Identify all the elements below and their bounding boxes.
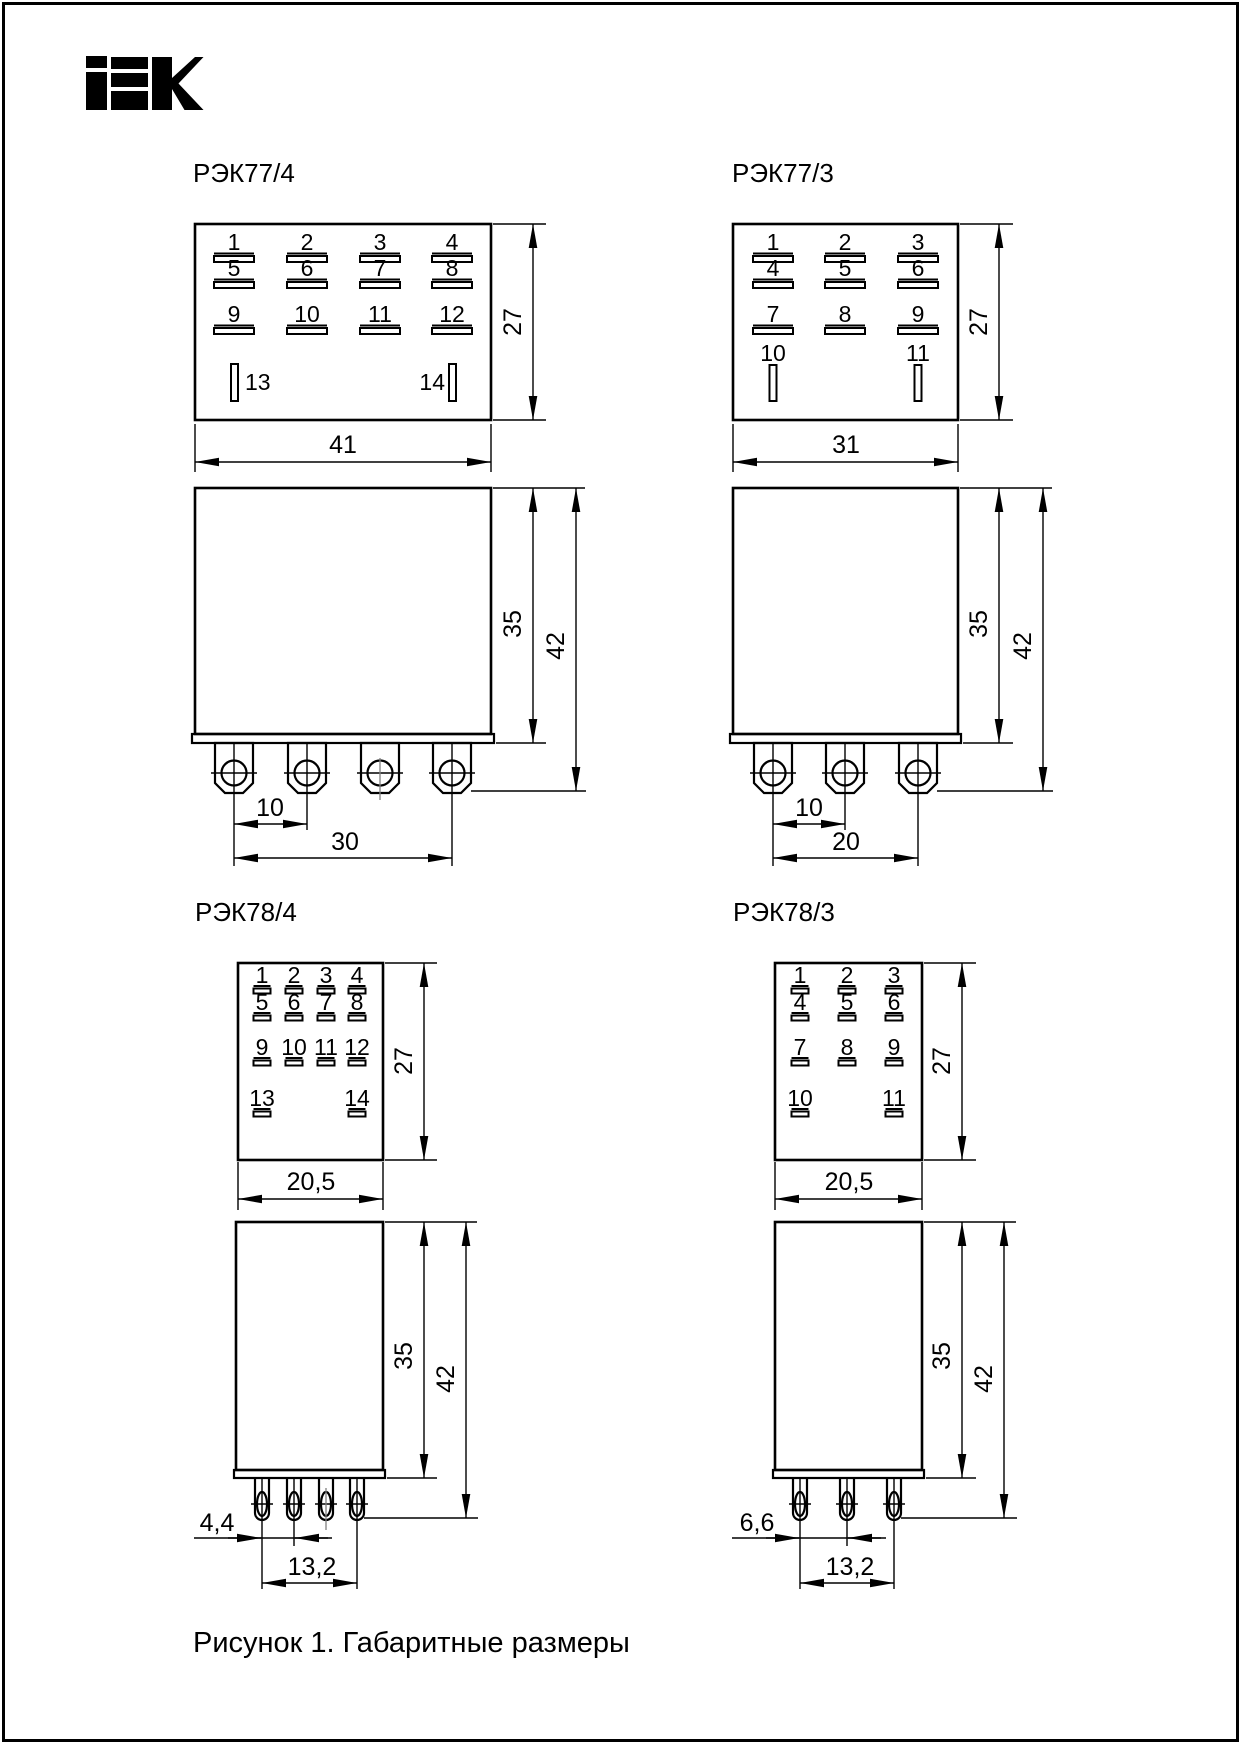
base-plate [192, 734, 494, 743]
dimension-span-13-2: 13,2 [262, 1553, 357, 1583]
pin-grid: 1 2 3 4 5 6 7 8 9 10 [787, 962, 906, 1117]
diagram-title: РЭК78/3 [733, 897, 835, 927]
pin-slot [318, 1016, 335, 1021]
pin-label: 8 [351, 989, 364, 1015]
pin-label: 4 [446, 229, 459, 255]
dimension-width-31: 31 [733, 424, 958, 472]
coil-pin-slot [231, 364, 238, 401]
rek77-4-side-view: 35 42 10 30 [192, 488, 586, 866]
pin-grid: 1 2 3 4 5 6 7 8 9 10 11 [249, 962, 370, 1117]
dimension-body-35: 35 [493, 488, 585, 743]
rek77-4-top-view: 1 2 3 4 5 6 7 8 9 10 11 [195, 224, 546, 472]
pin-slot [898, 282, 938, 288]
pin-label: 13 [245, 369, 271, 395]
diagram-title: РЭК78/4 [195, 897, 297, 927]
coil-pin-slot [770, 365, 777, 401]
rek77-3-diagram: РЭК77/3 1 2 3 4 5 6 7 8 9 [730, 158, 1053, 866]
logo-i-dot [86, 56, 107, 68]
dimension-span-13-2: 13,2 [800, 1553, 894, 1583]
pin-slot [825, 282, 865, 288]
pin-label: 13 [249, 1085, 275, 1111]
diagram-title: РЭК77/3 [732, 158, 834, 188]
rek78-3-side-view: 35 42 6,6 13,2 [732, 1222, 1017, 1589]
dim-label: 42 [970, 1365, 998, 1393]
logo-e-bar-mid [111, 73, 148, 87]
pin-label: 9 [228, 301, 241, 327]
logo-k [152, 57, 204, 110]
dimension-total-42: 42 [901, 1222, 1017, 1518]
dimension-height-27: 27 [493, 224, 546, 420]
pin-label: 12 [344, 1034, 370, 1060]
dim-label: 42 [542, 632, 570, 660]
dim-label: 42 [1009, 632, 1037, 660]
logo-e-bar-top [111, 57, 148, 69]
pin-label: 10 [294, 301, 320, 327]
pin-slot [287, 282, 327, 288]
dim-label: 27 [499, 308, 527, 336]
dim-label: 35 [499, 610, 527, 638]
pin-label: 3 [374, 229, 387, 255]
diagram-title: РЭК77/4 [193, 158, 295, 188]
pin-label: 5 [228, 255, 241, 281]
relay-body-outline [236, 1222, 383, 1470]
rek78-4-diagram: РЭК78/4 1 2 3 4 5 6 7 8 [194, 897, 478, 1589]
pin-label: 8 [841, 1034, 854, 1060]
rek77-3-top-view: 1 2 3 4 5 6 7 8 9 10 [733, 224, 1013, 472]
relay-body-outline [733, 488, 958, 734]
pin-slot [214, 282, 254, 288]
pin-slot [360, 328, 400, 334]
dimension-total-42: 42 [937, 488, 1053, 791]
dimension-height-27: 27 [960, 224, 1013, 420]
pin-label: 12 [439, 301, 465, 327]
pin-label: 3 [320, 962, 333, 988]
dimension-pitch-10: 10 [773, 794, 845, 824]
dimension-width-20-5: 20,5 [775, 1162, 922, 1210]
dimension-total-42: 42 [471, 488, 586, 791]
coil-pin-slot [449, 364, 456, 401]
pin-label: 9 [888, 1034, 901, 1060]
pin-label: 6 [912, 255, 925, 281]
pin-slot [349, 1016, 366, 1021]
pin-slot [349, 1061, 366, 1066]
pin-grid: 1 2 3 4 5 6 7 8 9 10 11 [214, 229, 472, 401]
pin-label: 4 [767, 255, 780, 281]
page-border [4, 4, 1238, 1741]
pin-label: 14 [419, 369, 445, 395]
pin-slot [753, 328, 793, 334]
pin-slot [214, 328, 254, 334]
pin-label: 3 [888, 962, 901, 988]
pin-label: 8 [446, 255, 459, 281]
pin-slot [839, 1016, 856, 1021]
pin-label: 10 [760, 340, 786, 366]
rek77-4-diagram: РЭК77/4 1 2 3 4 5 6 7 8 [192, 158, 586, 866]
pin-label: 11 [368, 301, 392, 327]
dim-label: 4,4 [200, 1509, 235, 1537]
pin-label: 5 [256, 989, 269, 1015]
dimension-body-35: 35 [924, 1222, 1016, 1478]
pin-label: 6 [888, 989, 901, 1015]
pin-slot [839, 1061, 856, 1066]
pin-label: 11 [906, 340, 930, 366]
dim-label: 27 [928, 1047, 956, 1075]
dim-label: 20,5 [287, 1168, 336, 1196]
dimension-height-27: 27 [385, 963, 437, 1160]
pin-slot [254, 1061, 271, 1066]
pin-label: 1 [228, 229, 241, 255]
pin-slot [254, 1112, 271, 1117]
dim-label: 6,6 [740, 1509, 775, 1537]
dim-label: 20 [832, 828, 860, 856]
coil-pin-slot [915, 365, 922, 401]
pin-label: 1 [767, 229, 780, 255]
rek78-4-side-view: 35 42 4,4 13,2 [194, 1222, 478, 1589]
pin-slot [287, 328, 327, 334]
relay-body-outline [195, 488, 491, 734]
dim-label: 13,2 [288, 1553, 337, 1581]
dim-label: 35 [928, 1342, 956, 1370]
pin-slot [432, 328, 472, 334]
pin-grid: 1 2 3 4 5 6 7 8 9 10 [753, 229, 938, 401]
pin-label: 5 [839, 255, 852, 281]
dimension-span-30: 30 [234, 828, 452, 858]
dim-label: 20,5 [825, 1168, 874, 1196]
rek78-4-top-view: 1 2 3 4 5 6 7 8 9 10 11 [238, 962, 437, 1210]
pin-slot [825, 328, 865, 334]
pin-label: 7 [794, 1034, 807, 1060]
pin-slot [792, 1016, 809, 1021]
dim-label: 10 [795, 794, 823, 822]
dimension-pitch-10: 10 [234, 794, 307, 824]
dimension-drawing: РЭК77/4 1 2 3 4 5 6 7 8 [0, 0, 1241, 1747]
pin-label: 1 [256, 962, 269, 988]
pin-slot [349, 1112, 366, 1117]
dimension-pitch-6-6: 6,6 [732, 1509, 886, 1538]
dim-label: 30 [331, 828, 359, 856]
pin-label: 10 [787, 1085, 813, 1111]
pin-label: 6 [301, 255, 314, 281]
pin-label: 7 [767, 301, 780, 327]
pin-label: 7 [374, 255, 387, 281]
dim-label: 35 [390, 1342, 418, 1370]
pin-label: 2 [288, 962, 301, 988]
pin-slot [886, 1112, 903, 1117]
dim-label: 31 [832, 431, 860, 459]
pin-label: 6 [288, 989, 301, 1015]
pin-label: 14 [344, 1085, 370, 1111]
dim-label: 35 [965, 610, 993, 638]
logo-e-bar-bottom [111, 91, 148, 110]
iek-logo [86, 56, 204, 110]
pin-label: 9 [256, 1034, 269, 1060]
pin-slot [360, 282, 400, 288]
relay-body-outline [775, 1222, 922, 1470]
dim-label: 13,2 [826, 1553, 875, 1581]
pin-label: 4 [351, 962, 364, 988]
dim-label: 41 [329, 431, 357, 459]
pin-label: 2 [839, 229, 852, 255]
dimension-pitch-4-4: 4,4 [194, 1509, 332, 1538]
rek78-3-top-view: 1 2 3 4 5 6 7 8 9 10 [775, 962, 976, 1210]
dim-label: 27 [965, 308, 993, 336]
figure-caption: Рисунок 1. Габаритные размеры [193, 1627, 630, 1659]
pin-slot [792, 1112, 809, 1117]
pin-slot [753, 282, 793, 288]
pin-slot [254, 1016, 271, 1021]
dimension-width-20-5: 20,5 [238, 1162, 383, 1210]
pin-slot [286, 1061, 303, 1066]
base-plate [730, 734, 961, 743]
pin-slot [898, 328, 938, 334]
pin-label: 5 [841, 989, 854, 1015]
pin-label: 3 [912, 229, 925, 255]
pin-label: 7 [320, 989, 333, 1015]
pin-label: 4 [794, 989, 807, 1015]
rek77-3-side-view: 35 42 10 20 [730, 488, 1053, 866]
pin-slot [318, 1061, 335, 1066]
pin-slot [886, 1061, 903, 1066]
dimension-body-35: 35 [960, 488, 1052, 743]
pin-slot [432, 282, 472, 288]
pin-label: 11 [314, 1034, 338, 1060]
pin-label: 11 [882, 1085, 906, 1111]
dimension-body-35: 35 [385, 1222, 477, 1478]
logo-i-stem [86, 72, 107, 110]
pin-label: 8 [839, 301, 852, 327]
pin-label: 2 [841, 962, 854, 988]
pin-slot [886, 1016, 903, 1021]
pin-slot [792, 1061, 809, 1066]
dim-label: 27 [390, 1047, 418, 1075]
dimension-height-27: 27 [924, 963, 976, 1160]
pin-label: 1 [794, 962, 807, 988]
pin-label: 10 [281, 1034, 307, 1060]
dim-label: 42 [432, 1365, 460, 1393]
dim-label: 10 [256, 794, 284, 822]
dimension-width-41: 41 [195, 424, 491, 472]
pin-label: 2 [301, 229, 314, 255]
rek78-3-diagram: РЭК78/3 1 2 3 4 5 6 7 8 9 [732, 897, 1017, 1589]
dimension-total-42: 42 [364, 1222, 478, 1518]
dimension-span-20: 20 [773, 828, 918, 858]
pin-label: 9 [912, 301, 925, 327]
pin-slot [286, 1016, 303, 1021]
